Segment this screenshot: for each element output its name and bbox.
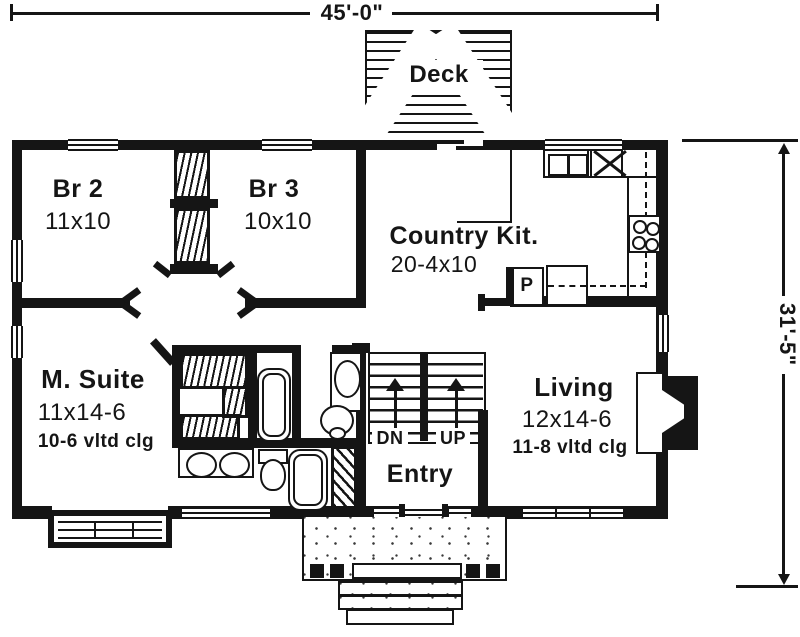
kitchen-corner-cabinet [590,149,623,178]
wall-mid-left [12,298,130,308]
stairs-center-rail [420,354,428,441]
room-label-br2: Br 2 [30,175,126,204]
room-label-deck: Deck [395,60,483,90]
window-br2-top [68,139,118,151]
walkin-closet-shelf-bottom [180,414,240,440]
dim-right-line-lower [782,374,785,574]
stairs-arrow-stem [394,390,397,432]
pantry-label: P [514,275,540,297]
sink-basin [568,154,588,176]
porch-step [346,609,454,625]
dim-right-ext-top [682,139,798,142]
bathtub-inner [293,454,323,506]
burner [632,236,646,250]
window-dining-right [657,315,669,352]
room-size-br3: 10x10 [230,208,326,236]
counter-box-dashed [548,285,586,287]
sink-bowl [219,452,250,478]
fireplace-hearth [636,372,664,454]
wall-closet-mid [170,199,218,208]
porch-pillar [330,564,344,578]
bay-window [48,510,172,548]
stairs-arrow-up-icon [386,378,404,391]
stairs-up-label: UP [436,428,470,449]
dim-right-line-upper [782,152,785,296]
room-label-living: Living [522,372,626,403]
dim-top-line-left [12,12,310,15]
porch-step [338,595,463,610]
room-size-kitchen: 20-4x10 [380,251,488,278]
dim-right-label: 31'-5" [768,296,800,372]
room-size-br2: 11x10 [30,208,126,236]
window-mbath-bottom [182,507,270,519]
porch-pillar [486,564,500,578]
burner [645,238,659,252]
room-ceiling-msuite: 10-6 vltd clg [26,431,166,453]
burner [633,220,647,234]
room-label-kitchen: Country Kit. [376,222,552,251]
bay-window-glass [58,521,162,539]
stairs-arrow-up-icon [447,378,465,391]
bathtub-master [257,368,291,442]
dim-right-ext-bottom [736,585,798,588]
kitchen-sink-cabinet [543,149,589,178]
room-size-living: 12x14-6 [512,406,622,434]
wall-closet-left [172,345,180,440]
walkin-closet-shelf-top [180,353,248,389]
deck-area: Deck [365,30,512,146]
linen-closet [331,446,357,510]
kitchen-range [628,215,661,253]
porch-step [338,581,463,596]
wall-br3-kitchen [356,149,366,305]
door-jamb-flare [216,261,235,278]
stairs-down-label: DN [372,428,408,449]
wall-closet-tub [248,345,257,442]
room-label-msuite: M. Suite [32,364,154,395]
wall-closet-bottom [170,264,218,274]
door-jamb-flare [122,302,141,319]
sliding-door-leaf [456,146,483,150]
room-ceiling-living: 11-8 vltd clg [500,437,640,459]
sink-bowl [186,452,217,478]
window-living-bottom [523,507,623,519]
toilet-base-hall [329,427,346,440]
dim-top-line-right [392,12,658,15]
room-label-br3: Br 3 [226,175,322,204]
porch-pillar [466,564,480,578]
dim-top-label: 45'-0" [306,0,398,26]
window-br2-left [11,240,23,282]
dim-top-tick-left [10,4,13,21]
sliding-door-leaf [437,140,464,144]
room-label-entry: Entry [372,460,468,489]
closet-br2 [174,150,210,199]
pantry: P [506,267,544,306]
porch-top-step [352,563,462,579]
room-size-msuite: 11x14-6 [30,399,134,427]
dim-top-tick-right [656,4,659,21]
bathtub-hall [288,449,328,511]
floor-plan: 45'-0" 31'-5" Deck [0,0,800,637]
dim-right-arrow-bottom-icon [778,574,790,585]
wall-mid-center [245,298,366,308]
toilet-bowl-master [260,459,286,491]
burner [646,222,660,236]
window-msuite-left [11,326,23,358]
porch-pillar [310,564,324,578]
bathtub-inner [262,373,286,437]
sink-basin [548,154,569,176]
wall-tub-bath [292,345,301,442]
stairs-arrow-stem [455,390,458,432]
sliding-door-deck [437,138,483,152]
closet-br3 [174,208,210,264]
sink-hall-bath [334,360,361,398]
kitchen-floor-edge-v [510,150,512,222]
wall-block-top [172,345,300,353]
window-br3-top [262,139,312,151]
